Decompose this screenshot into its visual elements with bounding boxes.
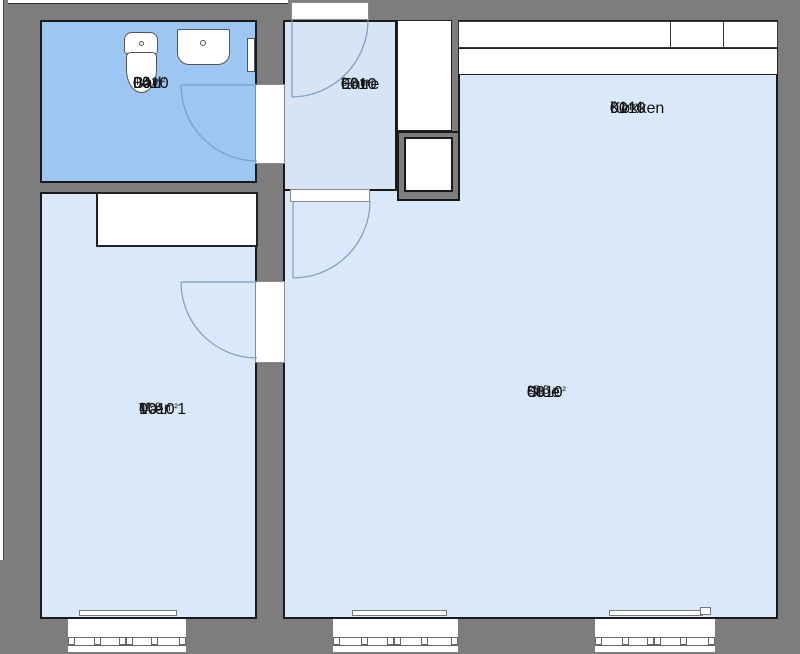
- entre-stue-door-opening: [290, 189, 370, 202]
- wardrobe-vaer1: [96, 192, 258, 247]
- duct-shaft-lower: [404, 137, 453, 192]
- kitchen-counter-divider-1: [670, 21, 671, 48]
- radiator-stue-left: [352, 610, 447, 616]
- kitchen-counter-divider-2: [723, 21, 724, 48]
- radiator-valve: [700, 607, 711, 615]
- window-vaer1: [68, 619, 186, 652]
- window-stue-left: [333, 619, 458, 652]
- kitchen-counter-lower: [458, 48, 778, 75]
- wall-left: [0, 0, 40, 654]
- floor-plan: 0010 01 Køkken 7.1 m² 0010 04 Bad 4.9 m²…: [0, 0, 800, 654]
- radiator-stue-right: [609, 610, 703, 616]
- room-entre: [283, 20, 397, 191]
- window-stue-right: [595, 619, 715, 652]
- room-area: 7.1 m²: [610, 100, 643, 114]
- room-area: 3.2 m²: [341, 76, 374, 90]
- exterior-edge-top: [8, 0, 288, 4]
- wall-bad-vaer1: [40, 183, 283, 192]
- sink-drain: [200, 40, 206, 46]
- room-area: 4.9 m²: [133, 75, 166, 89]
- room-area: 12.8 m²: [139, 401, 178, 415]
- room-area: 25.5 m²: [527, 384, 566, 398]
- radiator-vaer1: [79, 610, 177, 616]
- wall-vaer1-stue: [257, 192, 283, 619]
- wall-right: [776, 0, 800, 654]
- duct-shaft-upper: [397, 20, 452, 131]
- bathroom-wall-panel: [247, 38, 255, 72]
- exterior-edge-left: [0, 0, 4, 560]
- toilet-tank-button: [139, 41, 144, 46]
- bad-door-opening: [255, 84, 285, 164]
- front-door-opening: [291, 2, 369, 20]
- sink: [177, 29, 230, 65]
- vaer1-door-opening: [255, 281, 285, 363]
- kitchen-counter-upper: [458, 21, 778, 48]
